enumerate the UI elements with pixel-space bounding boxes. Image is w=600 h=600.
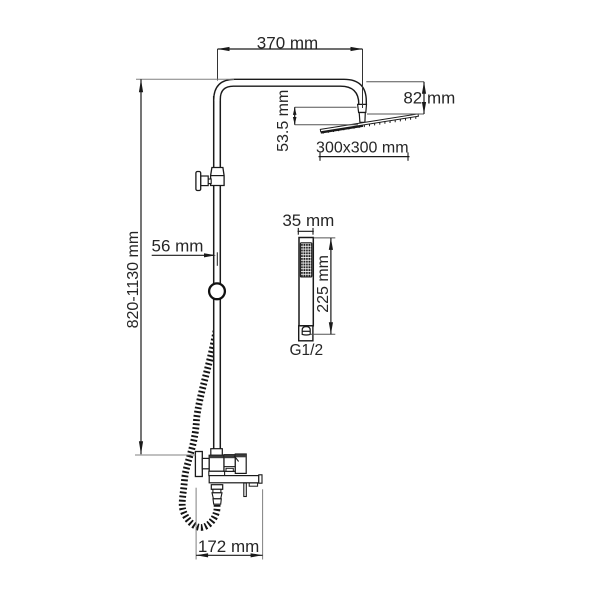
svg-text:172 mm: 172 mm (198, 537, 259, 556)
svg-text:225 mm: 225 mm (315, 255, 332, 313)
svg-text:370 mm: 370 mm (257, 34, 318, 53)
svg-text:82 mm: 82 mm (403, 88, 455, 107)
svg-text:G1/2: G1/2 (289, 342, 323, 359)
svg-text:300x300 mm: 300x300 mm (316, 139, 409, 156)
svg-text:820-1130 mm: 820-1130 mm (125, 231, 142, 329)
svg-text:35 mm: 35 mm (282, 211, 334, 230)
svg-text:53.5 mm: 53.5 mm (275, 90, 292, 152)
svg-text:56 mm: 56 mm (152, 237, 204, 256)
